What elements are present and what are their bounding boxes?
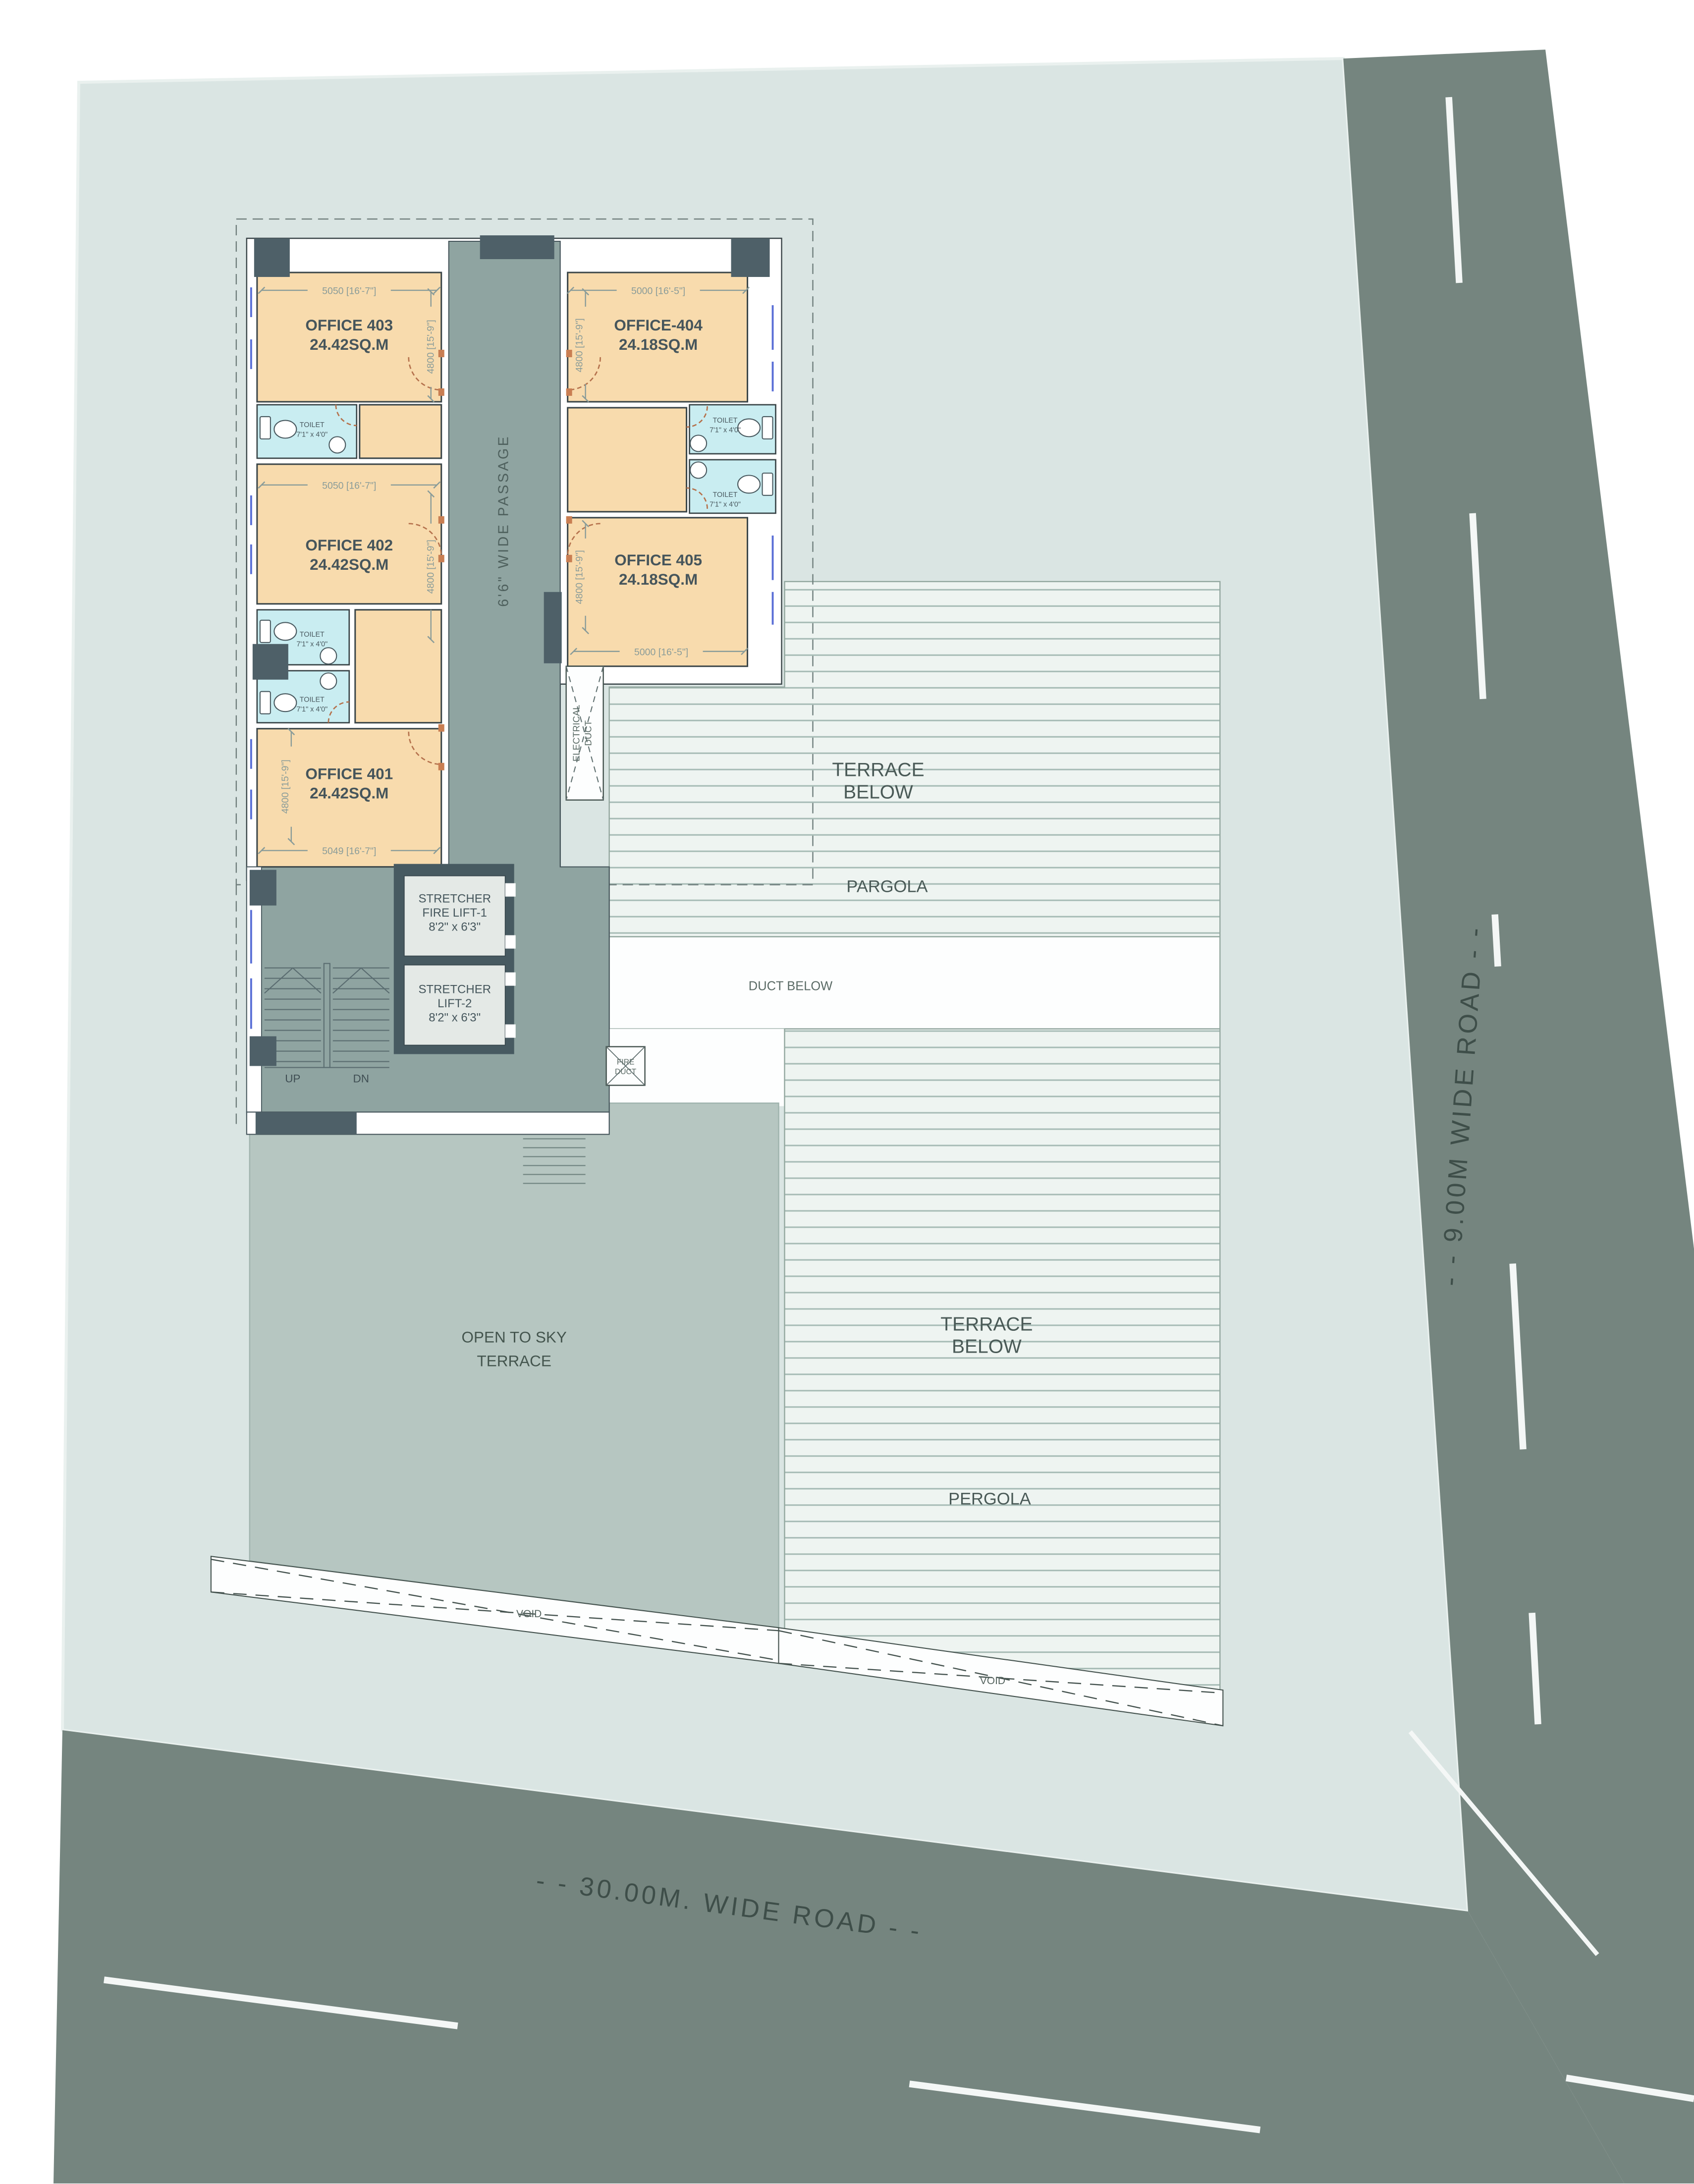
floor-plan-canvas: - - 30.00M. WIDE ROAD - - - - 9.00M WIDE… [0,0,1694,2184]
dim-403-height: 4800 [15'-9"] [426,320,437,374]
toilet-size: 7'1" x 4'0" [710,500,741,508]
void-label-right: VOID [980,1675,1005,1687]
south-wall-column [256,1112,357,1134]
pargola-label: PARGOLA [846,877,928,896]
lift-2-size: 8'2" x 6'3" [429,1011,481,1025]
stairs-up-label: UP [285,1073,300,1085]
lift-2-label-1: STRETCHER [418,983,491,996]
passage-label: 6'6" WIDE PASSAGE [496,435,512,607]
stairs-dn-label: DN [353,1073,369,1085]
toilet-403: TOILET 7'1" x 4'0" [257,405,357,458]
duct-below-area [609,937,1220,1029]
dim-402-width: 5050 [16'-7"] [322,480,376,491]
terrace-upper-label-1: TERRACE [832,760,924,781]
terrace-lower-label-1: TERRACE [940,1313,1033,1335]
dim-404-width: 5000 [16'-5"] [631,285,685,296]
dim-405-width: 5000 [16'-5"] [634,647,688,657]
room-filler-a [360,405,441,458]
pergola-label: PERGOLA [948,1489,1031,1508]
dim-404-height: 4800 [15'-9"] [574,318,585,372]
dim-405-height: 4800 [15'-9"] [574,550,585,604]
toilet-size: 7'1" x 4'0" [296,640,328,648]
room-office-405 [568,518,748,666]
toilet-label: TOILET [300,631,325,639]
lift-1-label-1: STRETCHER [418,892,491,906]
void-label-left: VOID [516,1608,542,1620]
terrace-upper-label-2: BELOW [843,782,913,803]
toilet-label: TOILET [713,417,738,425]
fire-duct-label-1: FIRE [617,1058,634,1067]
dim-401-width: 5049 [16'-7"] [322,846,376,857]
toilet-405: TOILET 7'1" x 4'0" [690,460,776,513]
terrace-lower-label-2: BELOW [952,1336,1022,1357]
duct-below-label: DUCT BELOW [749,980,832,993]
toilet-404: TOILET 7'1" x 4'0" [690,405,776,454]
fire-duct: FIRE DUCT [606,1047,645,1086]
open-terrace-label-2: TERRACE [477,1352,551,1369]
toilet-label: TOILET [300,421,325,429]
toilet-size: 7'1" x 4'0" [710,426,741,434]
toilet-label: TOILET [713,491,738,499]
lift-1-size: 8'2" x 6'3" [429,921,481,934]
room-filler-b [355,610,441,723]
open-terrace-label-1: OPEN TO SKY [462,1328,567,1346]
dim-402-height: 4800 [15'-9"] [426,540,437,594]
fire-duct-label-2: DUCT [615,1068,637,1076]
dim-403-width: 5050 [16'-7"] [322,285,376,296]
lift-block: STRETCHER FIRE LIFT-1 8'2" x 6'3" STRETC… [394,864,516,1054]
electrical-duct: ELECTRICAL DUCT [566,666,603,800]
lift-1-label-2: FIRE LIFT-1 [422,906,487,920]
room-filler-c [568,408,687,512]
electrical-duct-label-1: ELECTRICAL [571,705,582,762]
toilet-size: 7'1" x 4'0" [296,431,328,438]
lift-2-label-2: LIFT-2 [437,997,472,1010]
dim-401-height: 4800 [15'-9"] [280,760,291,814]
electrical-duct-label-2: DUCT [583,720,594,746]
toilet-size: 7'1" x 4'0" [296,706,328,713]
toilet-label: TOILET [300,696,325,704]
terrace-lower [785,1029,1220,1691]
